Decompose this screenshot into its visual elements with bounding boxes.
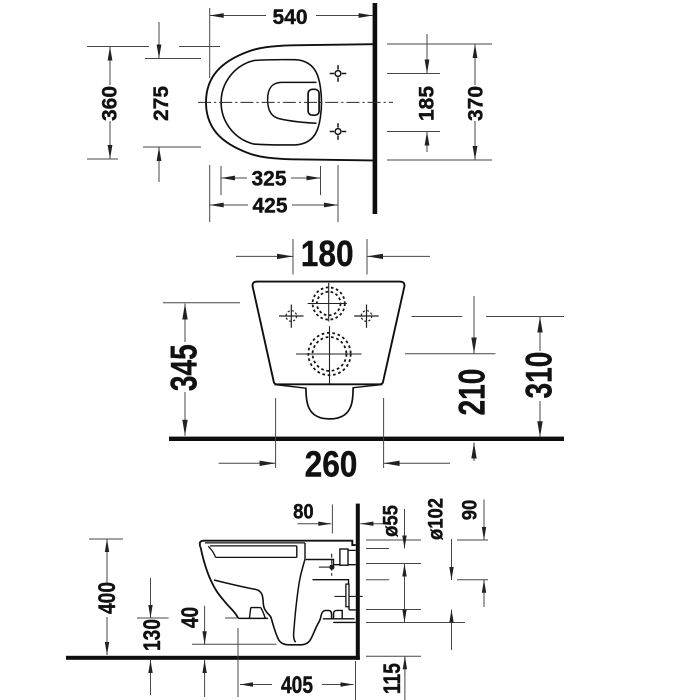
svg-text:210: 210 — [452, 369, 494, 416]
svg-text:90: 90 — [459, 500, 482, 521]
svg-text:370: 370 — [465, 86, 488, 121]
svg-text:360: 360 — [99, 86, 122, 121]
svg-text:345: 345 — [164, 344, 206, 391]
svg-text:40: 40 — [176, 607, 204, 628]
svg-text:ø102: ø102 — [425, 498, 448, 540]
svg-text:275: 275 — [150, 86, 173, 121]
svg-text:185: 185 — [416, 86, 439, 121]
svg-text:405: 405 — [281, 671, 313, 699]
svg-text:325: 325 — [251, 168, 286, 191]
svg-text:425: 425 — [252, 195, 287, 218]
svg-text:130: 130 — [138, 619, 166, 651]
svg-text:ø55: ø55 — [380, 505, 403, 537]
svg-text:540: 540 — [272, 6, 307, 29]
svg-text:310: 310 — [519, 352, 561, 399]
svg-text:400: 400 — [93, 582, 121, 614]
svg-text:260: 260 — [305, 445, 358, 485]
svg-text:180: 180 — [301, 234, 354, 274]
svg-text:80: 80 — [293, 501, 314, 524]
svg-text:115: 115 — [378, 663, 406, 694]
